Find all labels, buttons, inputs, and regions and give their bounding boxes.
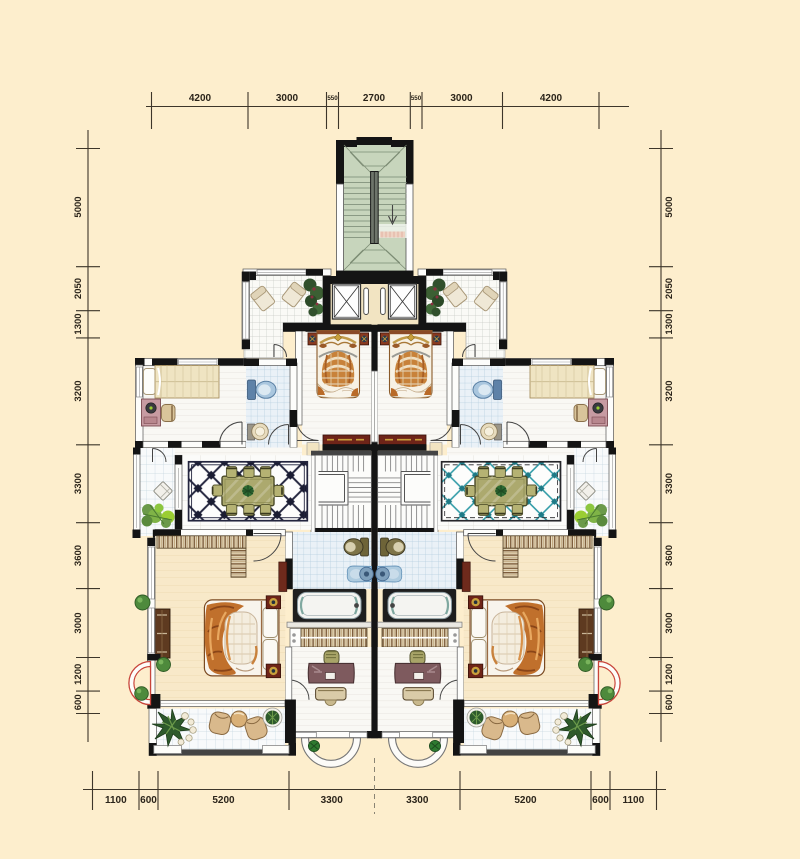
svg-text:3000: 3000 bbox=[276, 93, 299, 104]
svg-text:550: 550 bbox=[411, 95, 422, 102]
svg-text:2050: 2050 bbox=[664, 278, 675, 299]
svg-text:600: 600 bbox=[664, 694, 675, 710]
svg-text:1100: 1100 bbox=[105, 795, 127, 806]
svg-text:600: 600 bbox=[140, 795, 157, 806]
svg-text:5200: 5200 bbox=[514, 795, 537, 806]
svg-text:3000: 3000 bbox=[73, 612, 84, 633]
svg-text:3300: 3300 bbox=[73, 473, 84, 494]
svg-text:3600: 3600 bbox=[664, 545, 675, 566]
svg-text:600: 600 bbox=[592, 795, 609, 806]
svg-text:1200: 1200 bbox=[664, 664, 675, 685]
svg-text:3200: 3200 bbox=[73, 380, 84, 401]
svg-text:3300: 3300 bbox=[664, 473, 675, 494]
svg-text:4200: 4200 bbox=[540, 93, 563, 104]
svg-text:5000: 5000 bbox=[73, 196, 84, 217]
svg-text:1100: 1100 bbox=[622, 795, 644, 806]
svg-text:2700: 2700 bbox=[363, 93, 386, 104]
svg-text:3000: 3000 bbox=[450, 93, 473, 104]
svg-text:3300: 3300 bbox=[406, 795, 429, 806]
svg-text:3300: 3300 bbox=[321, 795, 344, 806]
svg-text:4200: 4200 bbox=[189, 93, 212, 104]
svg-text:3000: 3000 bbox=[664, 612, 675, 633]
svg-text:5200: 5200 bbox=[212, 795, 235, 806]
svg-text:2050: 2050 bbox=[73, 278, 84, 299]
svg-text:5000: 5000 bbox=[664, 196, 675, 217]
svg-text:550: 550 bbox=[327, 95, 338, 102]
svg-text:3200: 3200 bbox=[664, 380, 675, 401]
svg-text:1200: 1200 bbox=[73, 664, 84, 685]
svg-text:3600: 3600 bbox=[73, 545, 84, 566]
svg-text:1300: 1300 bbox=[73, 313, 84, 334]
svg-text:1300: 1300 bbox=[664, 313, 675, 334]
svg-text:600: 600 bbox=[73, 694, 84, 710]
